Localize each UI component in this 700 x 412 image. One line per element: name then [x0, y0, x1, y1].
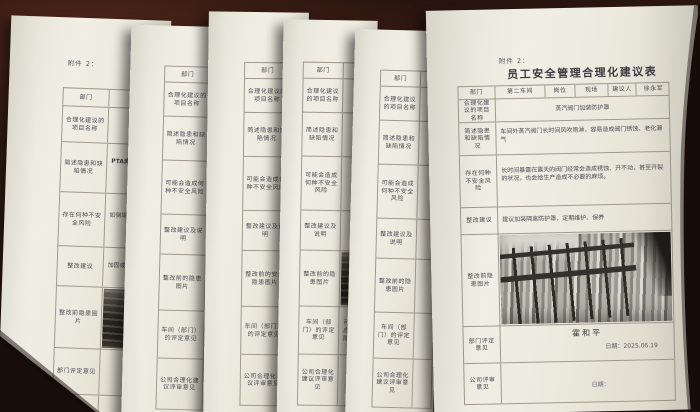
review-date: 日期：2025.06.19	[605, 342, 658, 351]
header-cell-department: 部门	[458, 86, 495, 99]
row-label: 整改建议及说明	[376, 219, 417, 259]
row-label: 可能会造成何种不安全风险	[301, 157, 342, 211]
attachment-label: 附件 2：	[68, 57, 99, 68]
row-label: 整改前的隐患图片	[159, 254, 206, 310]
rectification-suggestion: 建议加装隔离防护罩，定期维护、保养	[498, 204, 672, 234]
row-label: 公司合理化建议评审意见	[156, 358, 203, 409]
hazard-photo-pipes	[500, 232, 673, 325]
hazard-description: 车间外蒸汽阀门长时间风吹雨淋，容易造成阀门锈蚀、老化漏气	[496, 119, 670, 155]
row-label: 简述隐患和缺陷情况	[163, 117, 210, 161]
header-cell-department: 部门	[304, 63, 344, 79]
row-label: 整改前的隐患图片	[375, 259, 416, 313]
row-label: 整改建议	[461, 207, 499, 234]
row-label: 整改建议及说明	[160, 215, 207, 255]
form-title: 员工安全管理合理化建议表	[487, 63, 677, 83]
row-content	[414, 314, 433, 359]
row-label: 部门评定意见	[463, 326, 501, 363]
row-label: 合理化建议的项目名称	[459, 99, 496, 122]
project-name: 蒸汽阀门加装防护罩	[496, 96, 669, 122]
row-label: 简述隐患和缺陷情况	[459, 122, 497, 155]
row-label: 合理化建议的项目名称	[164, 83, 211, 117]
row-label: 简述隐患和缺陷情况	[379, 121, 420, 165]
row-label: 整改前隐患图片	[55, 286, 103, 349]
row-label: 整改建议	[57, 246, 104, 287]
company-review: 日期：	[501, 360, 675, 404]
header-cell-position-value: 现场	[575, 84, 608, 97]
row-label: 整改建议及说明	[301, 211, 342, 251]
row-label: 整改前隐患图片	[462, 234, 501, 326]
row-label: 可能会造成何种不安全风险	[377, 165, 418, 219]
row-label: 公司评审意见	[51, 394, 99, 412]
header-cell-proposer-value: 徐永军	[636, 83, 670, 96]
paper-6: 附件 2： 员工安全管理合理化建议表 部门 第二车间 岗位 现场 建议人 徐永军…	[426, 5, 700, 412]
photo-shading	[500, 232, 673, 325]
row-label: 整改前的隐患图片	[300, 251, 341, 307]
row-label: 简述隐患和缺陷情况	[60, 142, 108, 193]
row-label: 简述隐患和缺陷情况	[302, 113, 343, 157]
header-cell-proposer: 建议人	[608, 83, 636, 96]
header-cell-department: 部门	[165, 67, 211, 83]
row-content	[498, 231, 673, 326]
row-label: 公司评审意见	[464, 363, 502, 404]
attachment-label: 附件 2：	[499, 55, 530, 66]
row-label: 存在何种不安全风险	[58, 192, 106, 247]
row-label: 车间（部门）的评定意见	[299, 307, 340, 355]
row-label: 公司合理化建议评审意见	[298, 355, 339, 406]
row-label: 车间（部门）的评定意见	[374, 313, 415, 359]
row-label: 合理化建议的项目名称	[380, 87, 421, 121]
header-cell-department-value: 第二车间	[495, 85, 545, 98]
row-content	[412, 360, 431, 408]
row-label: 合理化建议的项目名称	[303, 79, 344, 113]
approver-signature: 霍和平	[501, 328, 674, 340]
header-cell-department: 部门	[381, 71, 421, 87]
department-review: 霍和平 日期：2025.06.19	[500, 323, 674, 363]
header-cell-department: 部门	[63, 88, 110, 107]
photo-of-suggestion-forms: 附件 2： 员 部门 第二车 合理化建议的项目名称 简述隐患和缺陷情况 PTA库…	[0, 0, 700, 412]
row-label: 可能会造成何种不安全风险	[162, 161, 209, 215]
row-label: 部门评定意见	[53, 348, 101, 395]
company-review-date: 日期：	[592, 381, 610, 389]
row-label: 存在何种不安全风险	[460, 155, 498, 207]
row-label: 公司合理化建议评审意见	[372, 359, 413, 408]
header-cell-position: 岗位	[545, 85, 575, 98]
form-table: 部门 第二车间 岗位 现场 建议人 徐永军 合理化建议的项目名称 蒸汽阀门加装防…	[457, 82, 676, 405]
row-label: 车间（部门）的评定意见	[158, 310, 205, 358]
risk-description: 长时间暴露在露天的阀门经常会造成锈蚀、开不动，甚至开裂的状况，也会给生产造成不必…	[497, 152, 671, 207]
row-label: 合理化建议的项目名称	[62, 106, 109, 143]
